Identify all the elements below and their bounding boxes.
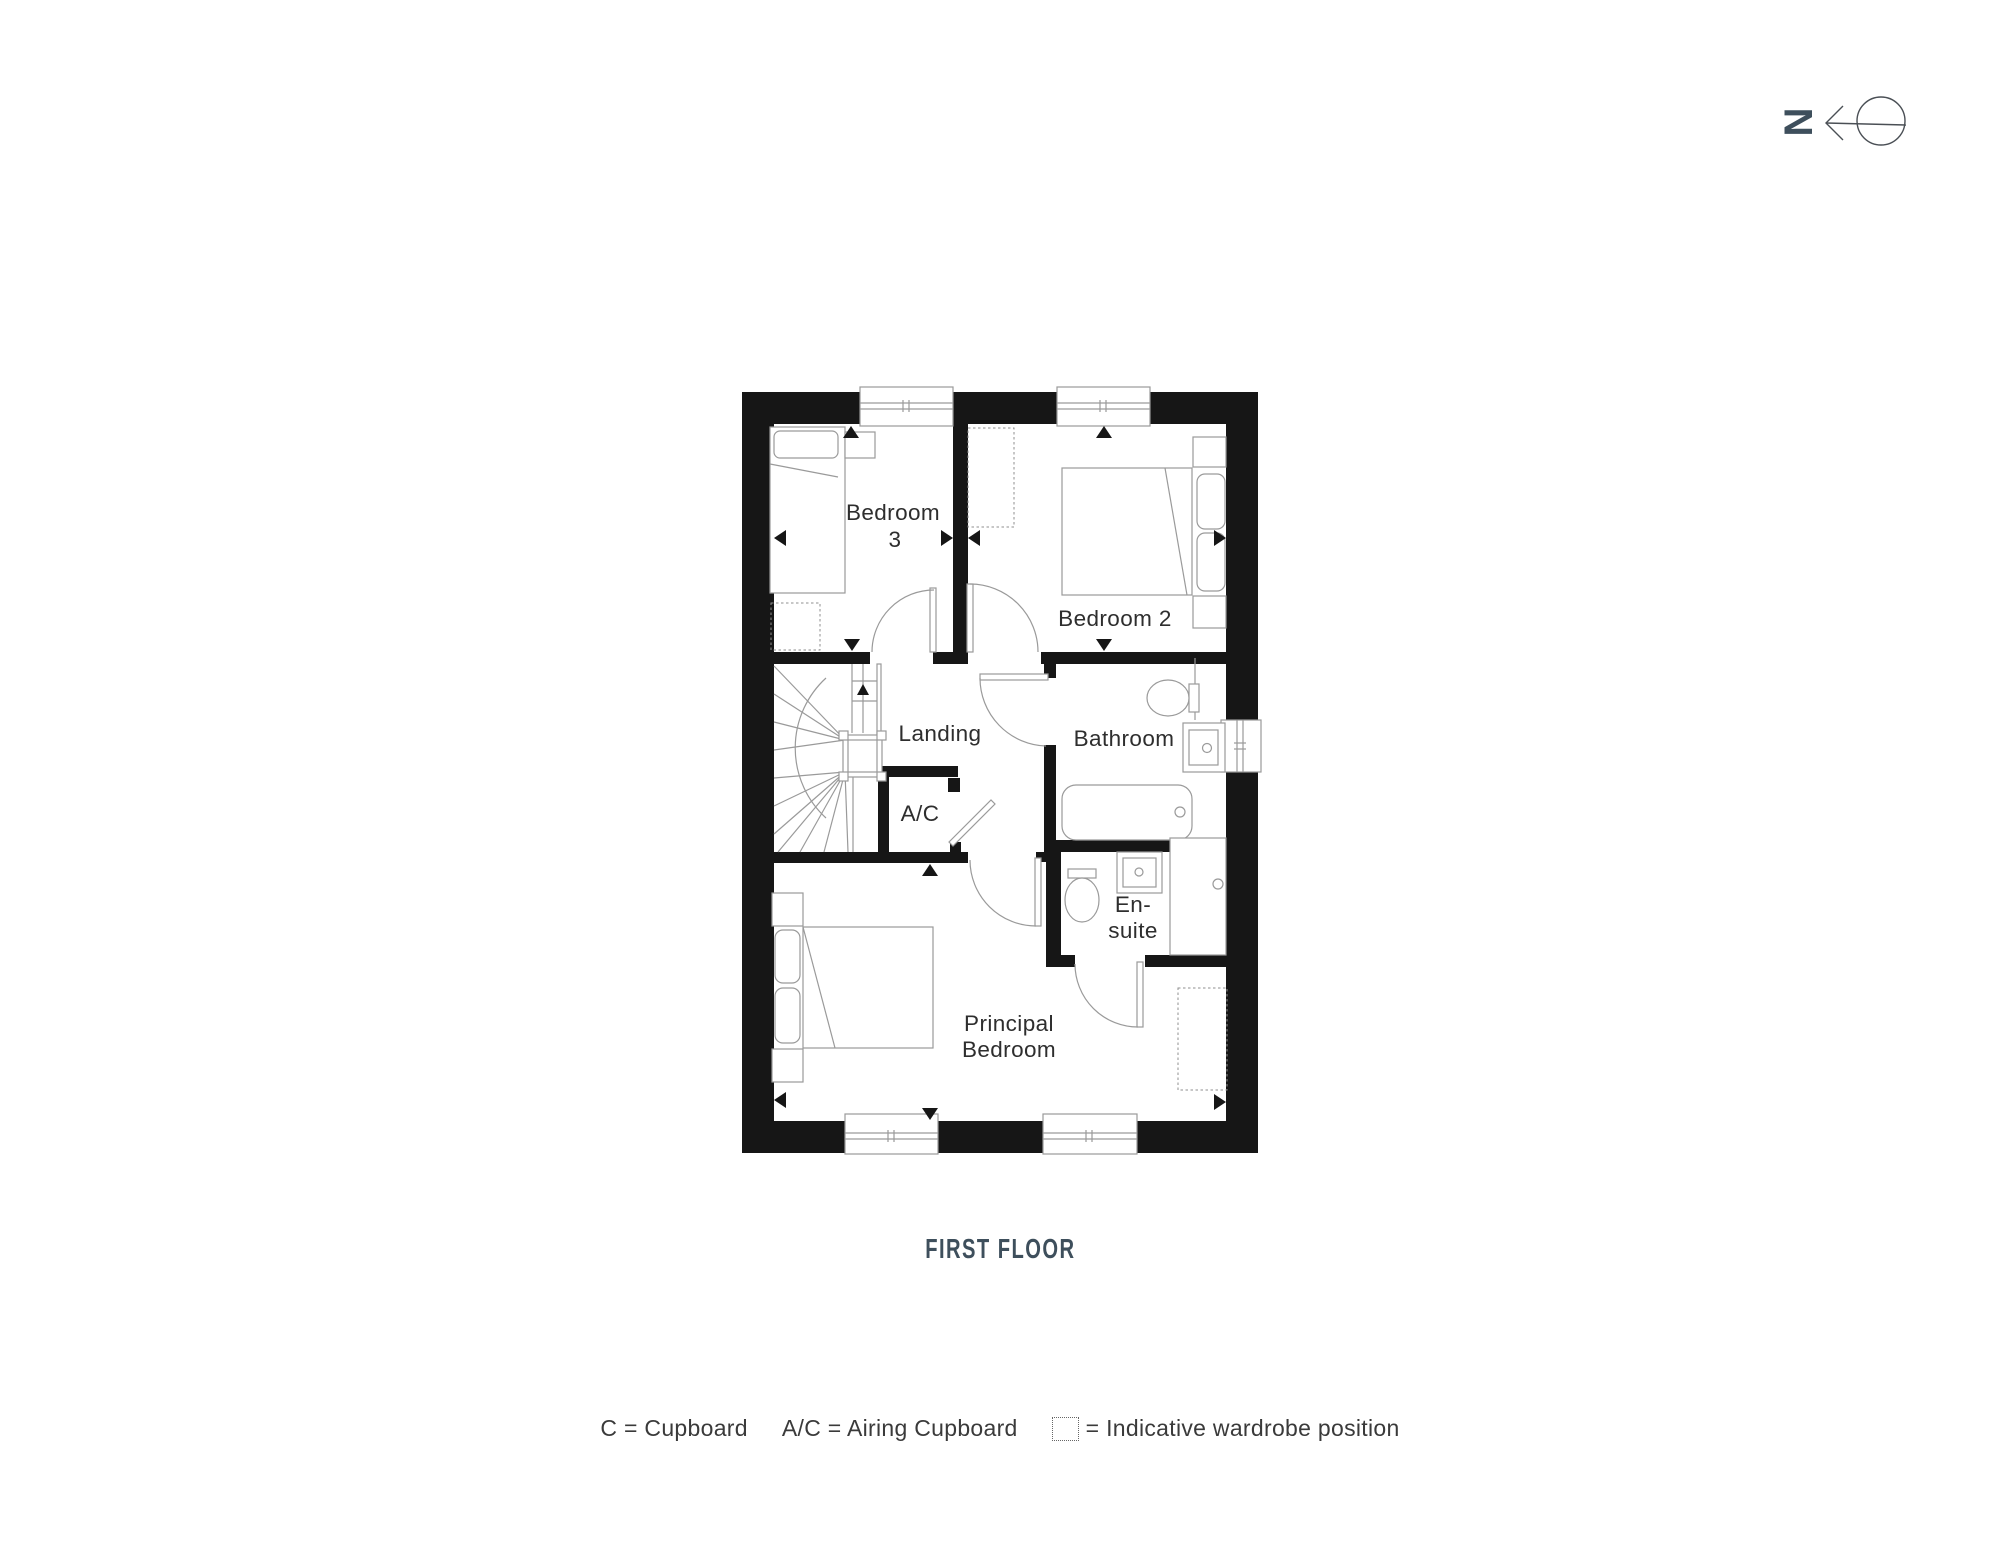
pillow [1197, 533, 1225, 591]
legend-wardrobe: = Indicative wardrobe position [1086, 1415, 1400, 1442]
compass-icon: N [1777, 97, 1906, 145]
stair-direction-arrow [857, 684, 869, 695]
pillow [775, 930, 800, 983]
window-principal-2 [1043, 1114, 1137, 1154]
compass-arrow-line [1826, 123, 1906, 125]
bedside-table [772, 893, 803, 926]
wardrobe-position [1178, 988, 1227, 1090]
room-label-principal-line2: Bedroom [962, 1037, 1056, 1062]
window-bedroom3 [860, 387, 953, 426]
toilet [1147, 680, 1189, 716]
bedroom2-furniture [968, 428, 1226, 628]
bath-drain [1175, 807, 1185, 817]
double-bed [803, 927, 933, 1048]
room-label-bedroom3: Bedroom [846, 500, 940, 525]
wardrobe-swatch-icon [1052, 1417, 1079, 1441]
pillow [774, 431, 838, 458]
window-bedroom2 [1057, 387, 1150, 426]
room-label-ensuite-line2: suite [1108, 918, 1158, 943]
shower [1170, 838, 1226, 955]
room-label-bedroom3-number: 3 [889, 527, 902, 552]
legend-cupboard: C = Cupboard [600, 1415, 747, 1442]
pillow [775, 988, 800, 1043]
shower-drain [1213, 879, 1223, 889]
window-bathroom [1221, 720, 1261, 772]
compass-north-letter: N [1777, 108, 1821, 137]
staircase [774, 664, 886, 852]
double-bed [1062, 468, 1192, 595]
bathtub [1062, 785, 1192, 840]
room-label-landing: Landing [899, 721, 982, 746]
basin-tap [1135, 868, 1143, 876]
room-label-airing-cupboard: A/C [901, 801, 940, 826]
floor-plan: N [0, 0, 2000, 1561]
wardrobe-position [968, 428, 1014, 527]
door-principal-bedroom [970, 858, 1041, 926]
bedside-table [1193, 596, 1226, 628]
floor-title: FIRST FLOOR [0, 1233, 2000, 1265]
legend-wardrobe-group: = Indicative wardrobe position [1052, 1415, 1400, 1442]
legend-airing-cupboard: A/C = Airing Cupboard [782, 1415, 1018, 1442]
bedside-table [772, 1049, 803, 1082]
legend: C = Cupboard A/C = Airing Cupboard = Ind… [0, 1415, 2000, 1442]
wardrobe-position [771, 603, 820, 650]
toilet [1065, 878, 1099, 922]
toilet-cistern [1068, 869, 1096, 878]
compass-circle [1857, 97, 1905, 145]
room-label-principal-line1: Principal [964, 1011, 1054, 1036]
door-bedroom3 [872, 588, 936, 652]
room-label-ensuite-line1: En- [1115, 892, 1151, 917]
room-label-bedroom2: Bedroom 2 [1058, 606, 1172, 631]
door-airing-cupboard [949, 800, 995, 846]
bedside-table [1193, 437, 1226, 467]
toilet-cistern [1189, 684, 1199, 712]
door-bedroom2 [967, 584, 1038, 652]
pillow [1197, 474, 1225, 529]
door-ensuite [1075, 962, 1143, 1027]
room-label-bathroom: Bathroom [1074, 726, 1175, 751]
basin-tap [1203, 744, 1212, 753]
door-bathroom [980, 674, 1048, 746]
floor-title-text: FIRST FLOOR [925, 1233, 1075, 1265]
window-principal-1 [845, 1114, 938, 1154]
